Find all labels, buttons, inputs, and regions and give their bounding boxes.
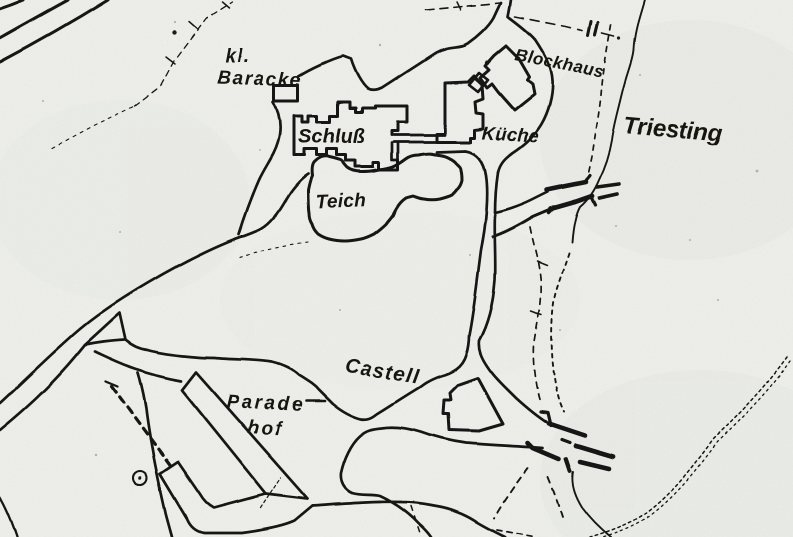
svg-text:Küche: Küche [482, 123, 539, 146]
svg-text:Teich: Teich [315, 190, 366, 213]
svg-text:Parade: Parade [226, 391, 303, 416]
svg-text:Schluß: Schluß [298, 126, 365, 148]
svg-text:kl.: kl. [225, 46, 249, 67]
